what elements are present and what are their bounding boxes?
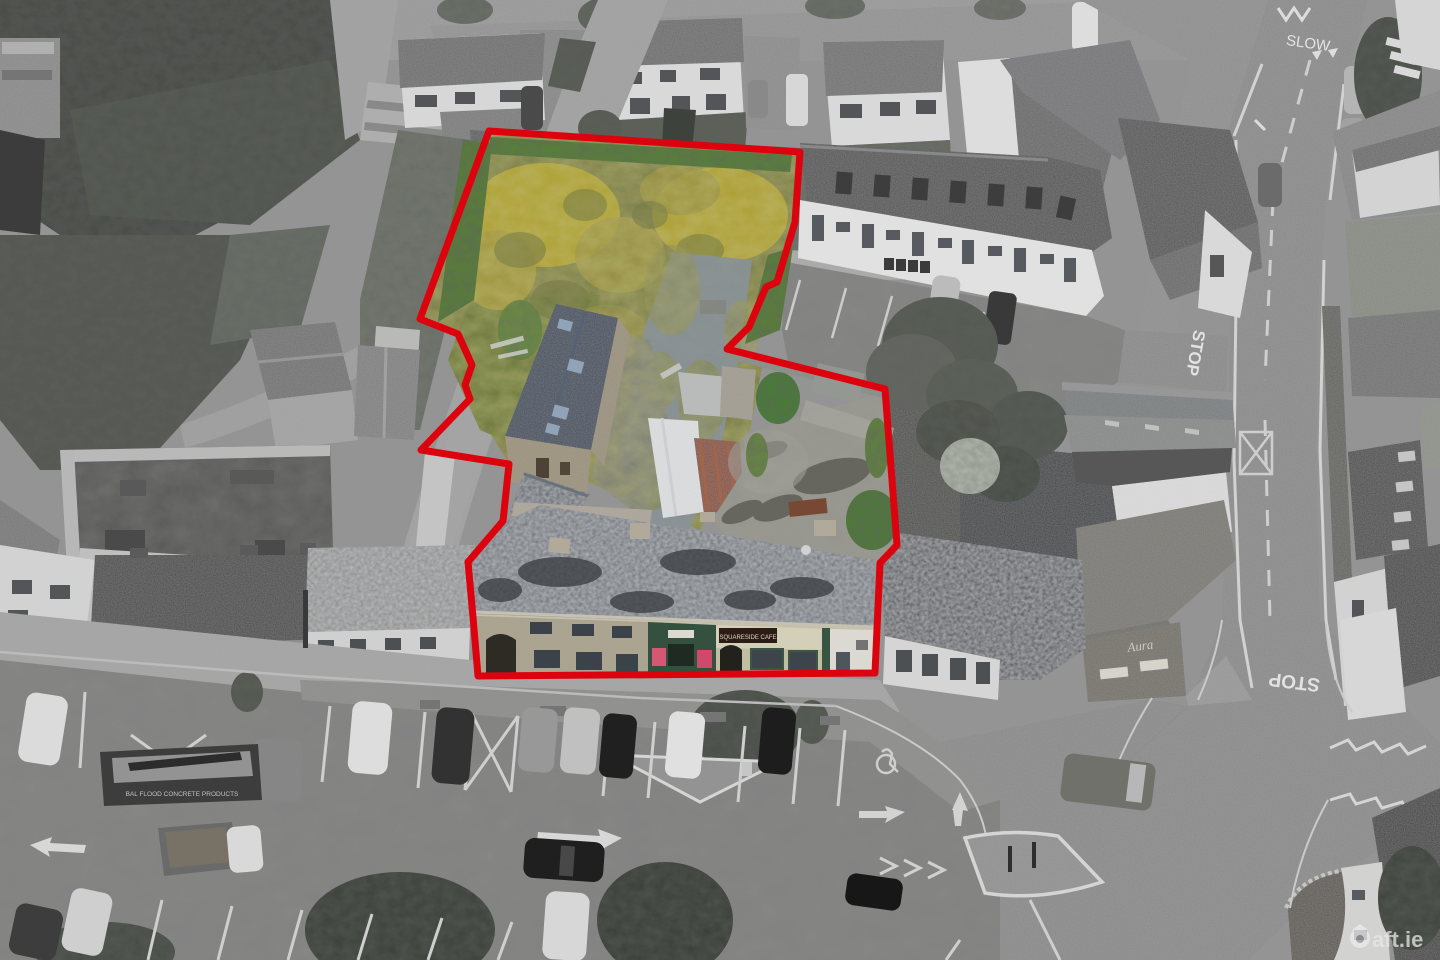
svg-text:aft.ie: aft.ie [1372, 927, 1423, 952]
